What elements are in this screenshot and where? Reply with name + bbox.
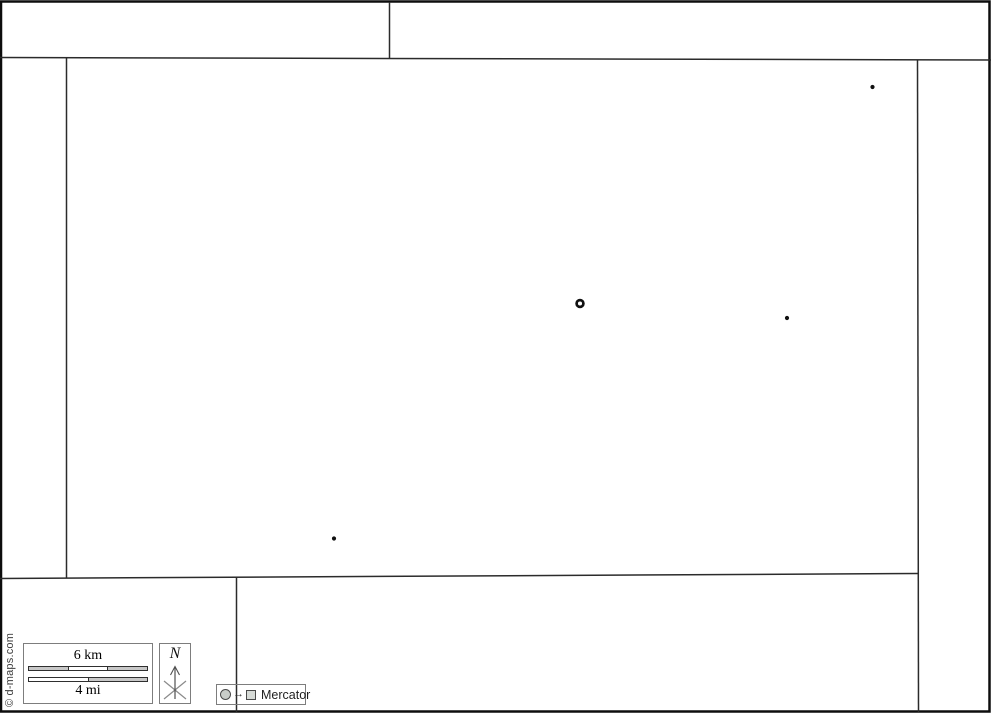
scale-bar-segment [69,666,109,671]
compass-rose: N [159,643,191,704]
north-boundary-line [0,58,991,61]
scale-km-bar [28,666,148,671]
projection-label: Mercator [261,688,310,702]
scale-bar: 6 km 4 mi [23,643,153,704]
scale-bar-segment [28,677,89,682]
map-boundaries-layer [0,0,991,713]
scale-bar-segment [28,666,69,671]
scale-km-label: 6 km [74,649,102,664]
map-canvas: © d-maps.com 6 km 4 mi N → Mercator [0,0,991,713]
map-frame-border [1,2,990,712]
city-dot-marker [870,85,874,89]
city-dot-marker [785,316,789,320]
scale-mi-label: 4 mi [75,684,100,699]
scale-mi-bar [28,677,148,682]
projection-legend: → Mercator [216,684,306,705]
scale-bar-segment [108,666,148,671]
scale-bar-segment [89,677,149,682]
north-arrow-icon [160,662,190,702]
compass-north-label: N [170,646,181,662]
south-boundary-line [0,574,919,579]
city-ring-marker [577,300,584,307]
circle-symbol-icon [220,689,231,700]
city-dot-marker [332,536,336,540]
east-boundary-line [918,60,919,712]
copyright-text: © d-maps.com [4,633,16,707]
transform-arrow-icon: → [233,689,244,700]
square-symbol-icon [246,690,256,700]
